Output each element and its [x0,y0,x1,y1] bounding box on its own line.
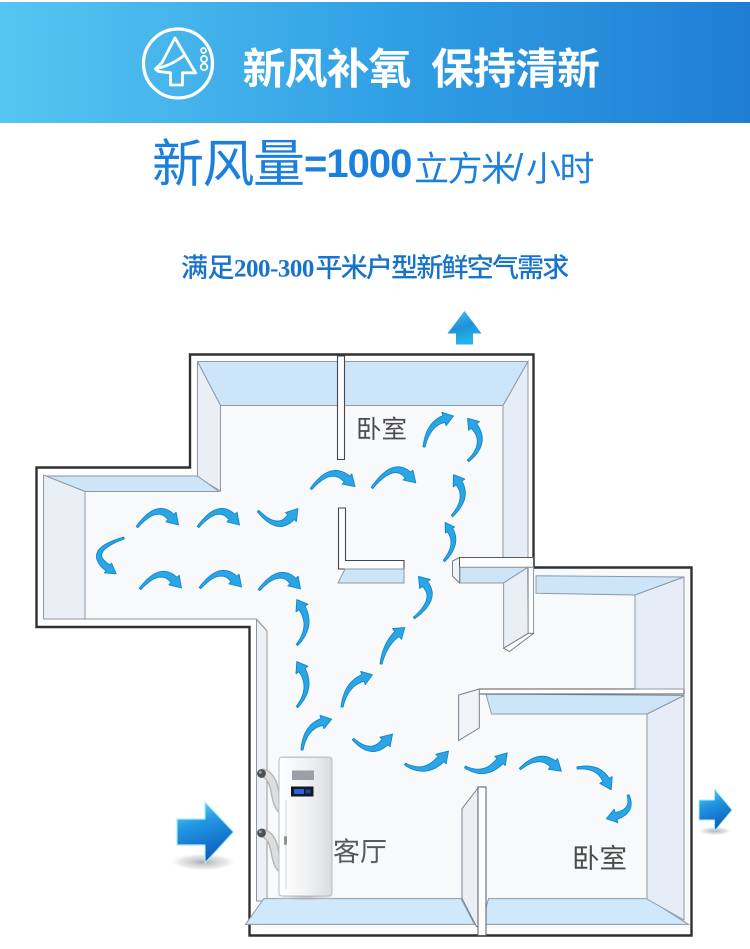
svg-text:200-300: 200-300 [234,256,314,283]
svg-text:/: / [513,147,524,188]
svg-text:=1000: =1000 [304,142,411,186]
